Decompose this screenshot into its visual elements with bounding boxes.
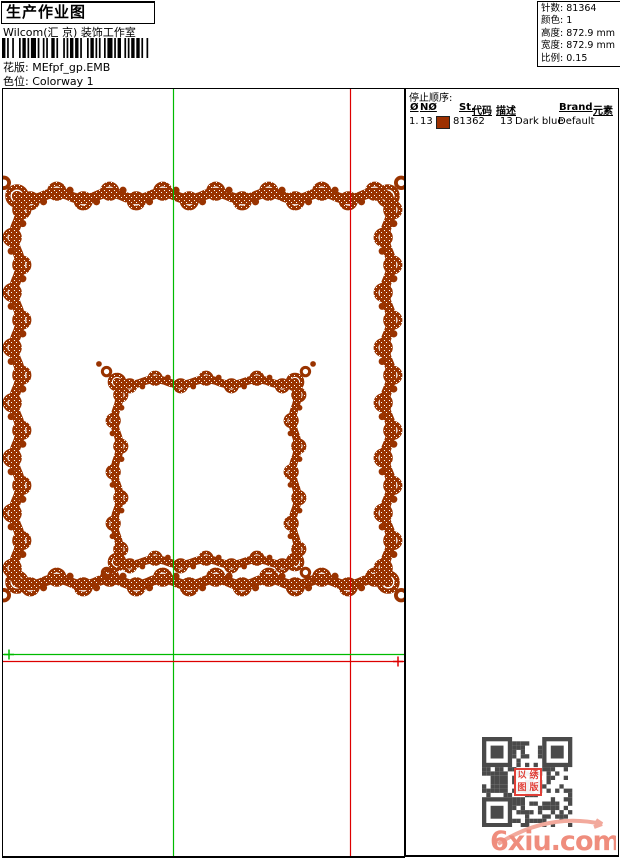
stop-sequence-table: 停止顺序: Ø NØ St. 代码 描述 Brand 元素 1. 13 8136… <box>405 88 619 131</box>
colorway-row: 色位: Colorway 1 <box>3 73 94 89</box>
cell-code: 13 <box>500 116 513 127</box>
barcode <box>2 38 158 58</box>
embroidery-design <box>3 170 404 609</box>
col-elements: 元素 <box>593 102 613 117</box>
col-stop: Ø <box>410 102 419 113</box>
design-scale-row: 比例: 0.15 <box>541 53 620 65</box>
colorway-label: 色位: <box>3 75 29 88</box>
qr-center-stamp: 以 绣 图 版 <box>514 768 542 796</box>
design-preview-area <box>2 88 405 858</box>
col-code: 代码 <box>472 102 492 117</box>
start-point-cross-icon <box>4 650 14 660</box>
watermark-text: 6xiu.com <box>490 826 616 857</box>
color-count-value: 1 <box>566 15 572 26</box>
end-point-cross-icon <box>393 657 403 667</box>
color-swatch <box>436 116 450 129</box>
design-height-value: 872.9 mm <box>566 28 615 39</box>
stitch-count-row: 针数: 81364 <box>541 3 620 15</box>
production-worksheet: { "header": { "title": "生产作业图", "studio"… <box>0 0 620 860</box>
cell-needle: 13 <box>420 116 433 127</box>
design-canvas <box>3 89 404 856</box>
color-count-row: 颜色: 1 <box>541 15 620 27</box>
design-height-row: 高度: 872.9 mm <box>541 28 620 40</box>
design-width-value: 872.9 mm <box>566 40 615 51</box>
stitch-count-value: 81364 <box>566 3 596 14</box>
col-needle: NØ <box>420 102 437 113</box>
cell-description: Dark blue <box>515 116 564 127</box>
design-width-row: 宽度: 872.9 mm <box>541 40 620 52</box>
cell-stitches: 81362 <box>453 116 485 127</box>
col-brand: Brand <box>559 102 593 113</box>
watermark-logo: 6xiu.com <box>486 806 616 858</box>
col-description: 描述 <box>496 102 516 117</box>
design-scale-value: 0.15 <box>566 53 587 64</box>
colorway-value: Colorway 1 <box>32 75 93 88</box>
page-title: 生产作业图 <box>1 1 155 24</box>
cell-seq: 1. <box>409 116 419 127</box>
design-info-box: 针数: 81364 颜色: 1 高度: 872.9 mm 宽度: 872.9 m… <box>537 1 620 67</box>
cell-brand: Default <box>558 116 595 127</box>
